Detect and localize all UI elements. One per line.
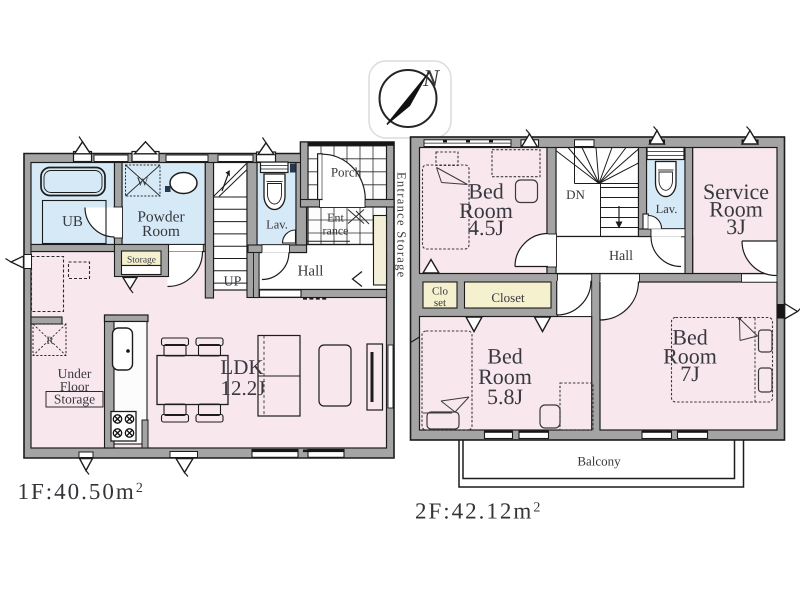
svg-text:UP: UP bbox=[224, 275, 242, 290]
svg-text:DN: DN bbox=[566, 187, 585, 202]
svg-text:Clo: Clo bbox=[432, 286, 448, 298]
svg-text:Hall: Hall bbox=[298, 264, 324, 280]
svg-text:Entrance Storage: Entrance Storage bbox=[395, 172, 409, 279]
svg-text:UB: UB bbox=[62, 214, 83, 230]
svg-text:1F:40.50m2: 1F:40.50m2 bbox=[18, 479, 145, 504]
svg-text:Storage: Storage bbox=[127, 256, 156, 266]
svg-text:Storage: Storage bbox=[54, 392, 95, 407]
svg-text:3J: 3J bbox=[726, 214, 746, 239]
svg-text:Lav.: Lav. bbox=[656, 202, 678, 216]
svg-text:Lav.: Lav. bbox=[266, 218, 288, 232]
svg-text:7J: 7J bbox=[680, 361, 700, 386]
svg-text:5.8J: 5.8J bbox=[487, 384, 524, 409]
svg-text:2F:42.12m2: 2F:42.12m2 bbox=[415, 499, 542, 524]
svg-text:W: W bbox=[137, 175, 149, 189]
svg-text:Room: Room bbox=[142, 223, 180, 240]
svg-text:Closet: Closet bbox=[491, 290, 525, 305]
svg-text:Balcony: Balcony bbox=[577, 454, 621, 469]
svg-text:Hall: Hall bbox=[609, 249, 633, 264]
svg-text:N: N bbox=[422, 66, 441, 92]
svg-text:R: R bbox=[46, 335, 54, 347]
svg-text:set: set bbox=[434, 297, 446, 309]
svg-text:rance: rance bbox=[323, 224, 349, 238]
svg-text:4.5J: 4.5J bbox=[468, 215, 505, 240]
svg-text:Ent: Ent bbox=[327, 211, 344, 225]
svg-text:Porch: Porch bbox=[331, 165, 362, 180]
svg-text:12.2J: 12.2J bbox=[221, 376, 266, 400]
